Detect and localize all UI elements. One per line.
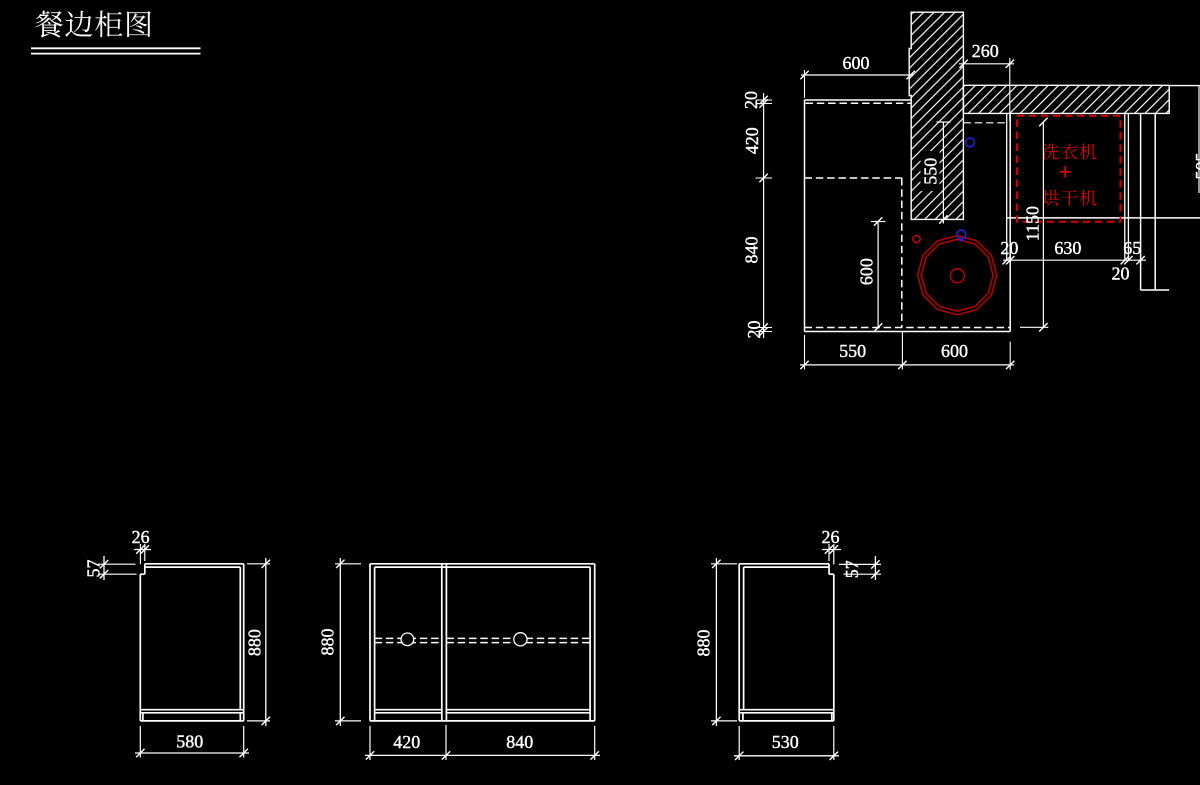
svg-text:20: 20 xyxy=(741,91,761,109)
svg-text:260: 260 xyxy=(972,41,999,61)
svg-text:880: 880 xyxy=(317,629,337,656)
svg-text:600: 600 xyxy=(856,258,876,285)
svg-text:840: 840 xyxy=(741,237,761,264)
svg-text:880: 880 xyxy=(245,629,265,656)
svg-text:530: 530 xyxy=(772,732,799,752)
svg-text:420: 420 xyxy=(742,127,762,154)
svg-text:26: 26 xyxy=(822,527,840,547)
svg-text:600: 600 xyxy=(941,341,968,361)
svg-text:580: 580 xyxy=(176,732,203,752)
svg-text:550: 550 xyxy=(839,341,866,361)
svg-text:57: 57 xyxy=(842,560,862,578)
svg-text:880: 880 xyxy=(693,630,713,657)
svg-text:420: 420 xyxy=(393,732,420,752)
svg-text:630: 630 xyxy=(1054,238,1081,258)
svg-text:20: 20 xyxy=(1000,238,1018,258)
svg-text:1150: 1150 xyxy=(1022,206,1042,241)
svg-text:600: 600 xyxy=(843,53,870,73)
svg-text:57: 57 xyxy=(83,560,103,578)
svg-text:20: 20 xyxy=(744,321,764,339)
svg-text:65: 65 xyxy=(1123,238,1141,258)
svg-text:550: 550 xyxy=(920,158,940,185)
svg-text:20: 20 xyxy=(1112,264,1130,284)
svg-text:26: 26 xyxy=(132,527,150,547)
svg-text:840: 840 xyxy=(506,732,533,752)
